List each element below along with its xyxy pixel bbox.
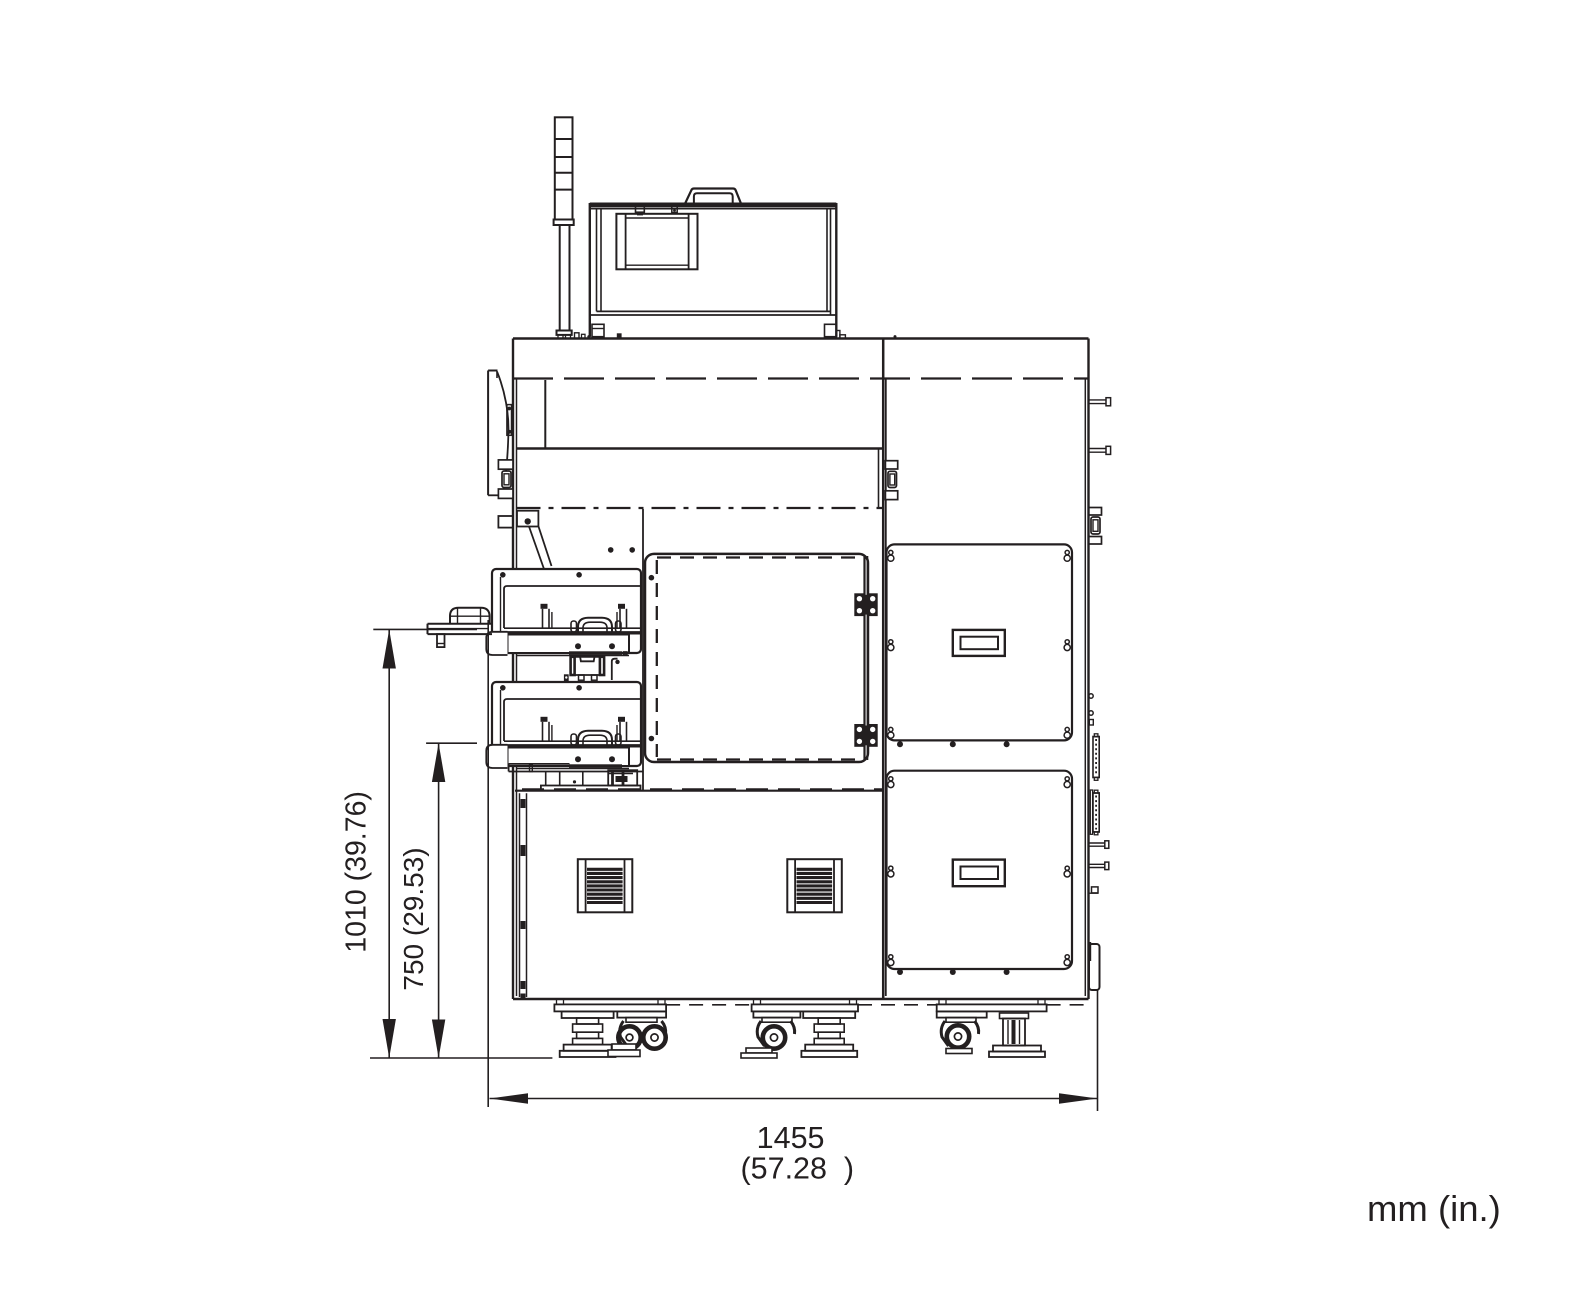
- svg-text:mm (in.): mm (in.): [1367, 1188, 1501, 1229]
- svg-text:1010 (39.76): 1010 (39.76): [341, 791, 373, 953]
- svg-text:750 (29.53): 750 (29.53): [398, 847, 429, 990]
- svg-text:1455: 1455: [757, 1121, 825, 1155]
- svg-text:(57.28 ): (57.28 ): [741, 1152, 855, 1186]
